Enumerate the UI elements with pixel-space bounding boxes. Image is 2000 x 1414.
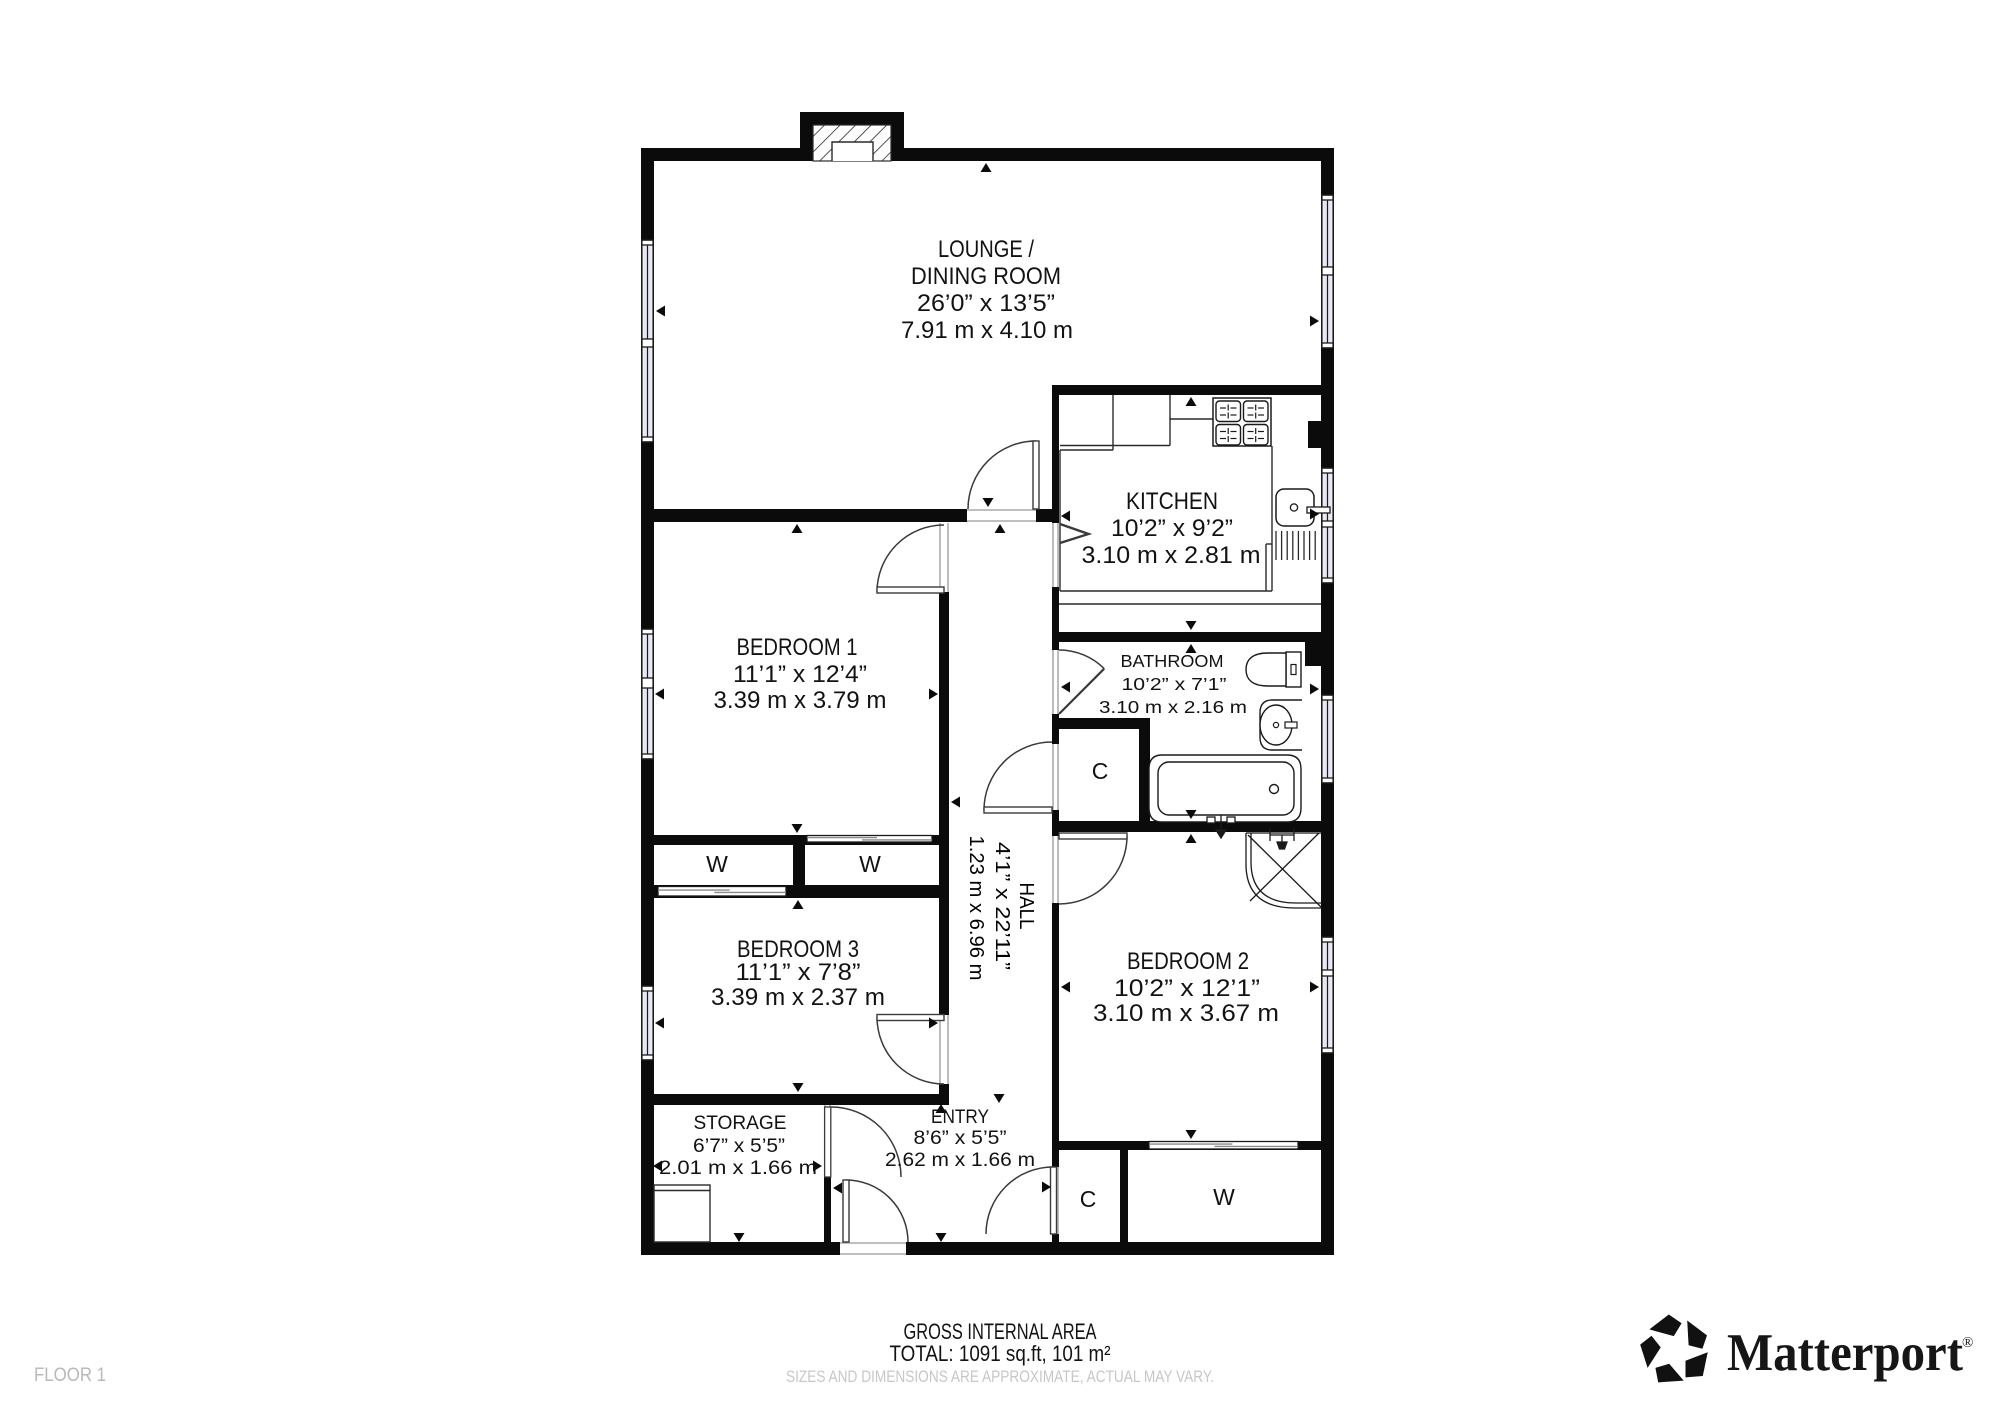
svg-text:10’2” x 7’1”: 10’2” x 7’1” [1122,674,1227,694]
svg-text:C: C [1080,1186,1097,1212]
svg-text:SIZES AND DIMENSIONS ARE APPRO: SIZES AND DIMENSIONS ARE APPROXIMATE, AC… [786,1367,1214,1386]
svg-text:3.10 m x 3.67 m: 3.10 m x 3.67 m [1093,1000,1279,1027]
svg-text:2.01 m x 1.66 m: 2.01 m x 1.66 m [659,1158,817,1179]
svg-text:11’1” x 12’4”: 11’1” x 12’4” [733,661,867,688]
svg-text:STORAGE: STORAGE [694,1113,787,1134]
svg-text:7.91 m x 4.10 m: 7.91 m x 4.10 m [901,317,1073,344]
svg-text:W: W [706,851,728,877]
svg-text:Matterport: Matterport [1727,1324,1963,1382]
svg-text:FLOOR 1: FLOOR 1 [34,1364,106,1386]
svg-text:3.10 m x 2.81 m: 3.10 m x 2.81 m [1082,542,1261,569]
svg-text:BATHROOM: BATHROOM [1121,651,1224,671]
svg-text:KITCHEN: KITCHEN [1126,488,1218,515]
svg-text:LOUNGE /: LOUNGE / [938,236,1034,263]
svg-text:4’1” x 22’11”: 4’1” x 22’11” [991,842,1013,970]
svg-text:26’0” x 13’5”: 26’0” x 13’5” [917,290,1055,317]
svg-text:C: C [1092,758,1109,784]
svg-text:10’2” x 9’2”: 10’2” x 9’2” [1111,515,1233,542]
svg-text:10’2” x 12’1”: 10’2” x 12’1” [1114,975,1260,1002]
svg-text:2.62 m x 1.66 m: 2.62 m x 1.66 m [885,1150,1035,1171]
svg-text:TOTAL: 1091 sq.ft, 101 m²: TOTAL: 1091 sq.ft, 101 m² [890,1341,1111,1366]
svg-text:3.39 m x 2.37 m: 3.39 m x 2.37 m [711,984,885,1011]
svg-text:®: ® [1962,1335,1973,1351]
svg-text:BEDROOM 1: BEDROOM 1 [737,634,858,661]
svg-text:DINING ROOM: DINING ROOM [911,263,1061,290]
svg-text:6’7” x 5’5”: 6’7” x 5’5” [693,1136,785,1157]
svg-text:8’6” x 5’5”: 8’6” x 5’5” [914,1128,1007,1149]
svg-text:HALL: HALL [1015,883,1037,930]
svg-text:BEDROOM 2: BEDROOM 2 [1127,948,1249,975]
svg-text:1.23 m x 6.96 m: 1.23 m x 6.96 m [965,836,987,981]
svg-text:ENTRY: ENTRY [931,1107,989,1128]
svg-text:W: W [1213,1184,1235,1210]
svg-text:W: W [859,851,881,877]
svg-text:11’1” x 7’8”: 11’1” x 7’8” [736,959,861,986]
svg-text:3.10 m x 2.16 m: 3.10 m x 2.16 m [1099,697,1247,717]
svg-text:3.39 m x 3.79 m: 3.39 m x 3.79 m [714,687,887,714]
